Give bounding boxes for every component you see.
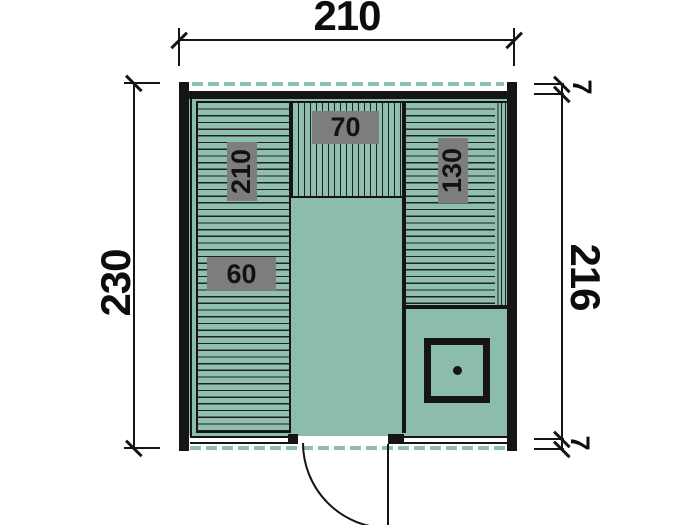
extension-line [178, 28, 180, 66]
dimension-line-top [179, 39, 515, 41]
extension-line [513, 28, 515, 66]
front-wall-panel-right [404, 436, 507, 444]
bench-right-backrest [495, 101, 507, 308]
extension-line [124, 82, 160, 84]
dimension-top-width: 210 [267, 0, 427, 36]
bench-right-length-label: 130 [438, 138, 468, 203]
bench-top-width-label: 70 [312, 111, 379, 144]
front-wall-panel-left [190, 436, 288, 444]
stove-center-dot [453, 366, 462, 375]
roof-overhang-dash-top [192, 82, 504, 86]
dimension-line-right [561, 84, 563, 450]
dimension-offset-top-right: 7 [568, 67, 596, 107]
bench-left-width-label: 60 [207, 257, 276, 291]
bench-left-length-label: 210 [227, 142, 257, 201]
wall-left-inner-edge [190, 99, 192, 436]
dimension-line-left [133, 83, 135, 449]
bench-left-width-text: 60 [226, 261, 256, 288]
wall-right [507, 82, 517, 451]
extension-line [124, 447, 160, 449]
floor-plan: 210 60 70 130 210 230 216 7 7 [0, 0, 700, 525]
dimension-right-height: 216 [563, 197, 607, 357]
wall-left [179, 82, 189, 451]
bench-right-bottom-edge [402, 305, 507, 309]
dimension-offset-bottom-right: 7 [566, 423, 594, 463]
dimension-left-height: 230 [94, 203, 138, 363]
bench-left-length-text: 210 [229, 149, 256, 194]
bench-top-width-text: 70 [330, 114, 360, 141]
door-swing-icon [301, 442, 391, 525]
bench-right-length-text: 130 [440, 148, 467, 193]
door-jamb-left [288, 434, 298, 444]
wall-top [189, 91, 507, 99]
bench-right [406, 101, 495, 308]
